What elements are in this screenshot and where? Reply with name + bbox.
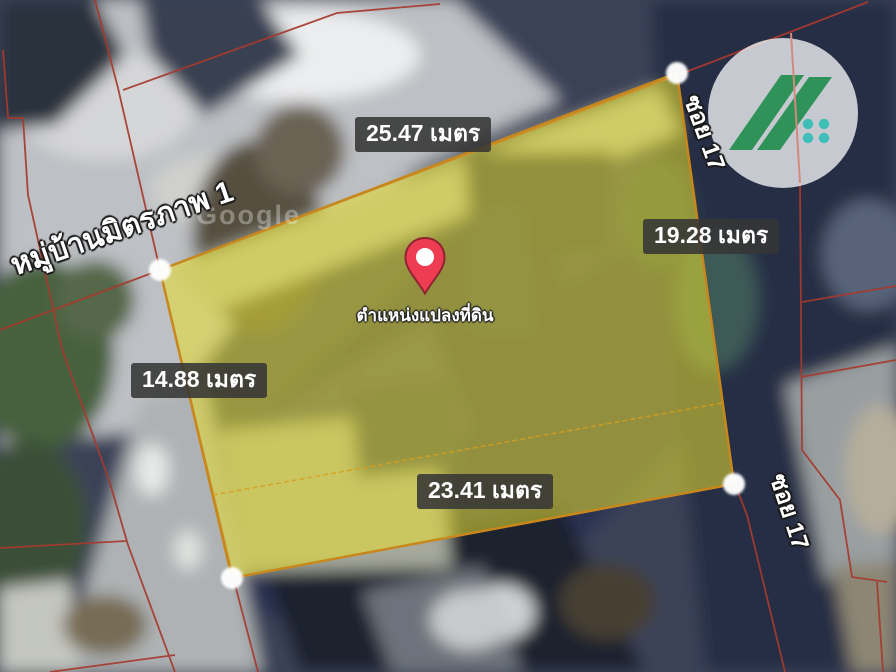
logo-dot [803,133,813,143]
measurement-label-right: 19.28 เมตร [643,219,779,254]
parcel-vertex-dot [666,62,688,84]
parcel-vertex-dot [221,567,243,589]
pin-label: ตำแหน่งแปลงที่ดิน [345,302,505,329]
location-pin-icon [403,236,447,296]
measurement-label-bottom: 23.41 เมตร [417,474,553,509]
measurement-label-left: 14.88 เมตร [131,363,267,398]
brand-logo-mark [708,38,858,188]
satellite-map-canvas: Google 25.47 เมตร 19.28 เมตร 14.88 เมตร … [0,0,896,672]
brand-logo [708,38,858,188]
logo-dot [819,133,829,143]
parcel-vertex-dot [723,473,745,495]
measurement-label-top: 25.47 เมตร [355,117,491,152]
parcel-vertex-dot [149,259,171,281]
logo-dot [803,119,813,129]
logo-dot [819,119,829,129]
logo-dot-grid [803,119,829,143]
